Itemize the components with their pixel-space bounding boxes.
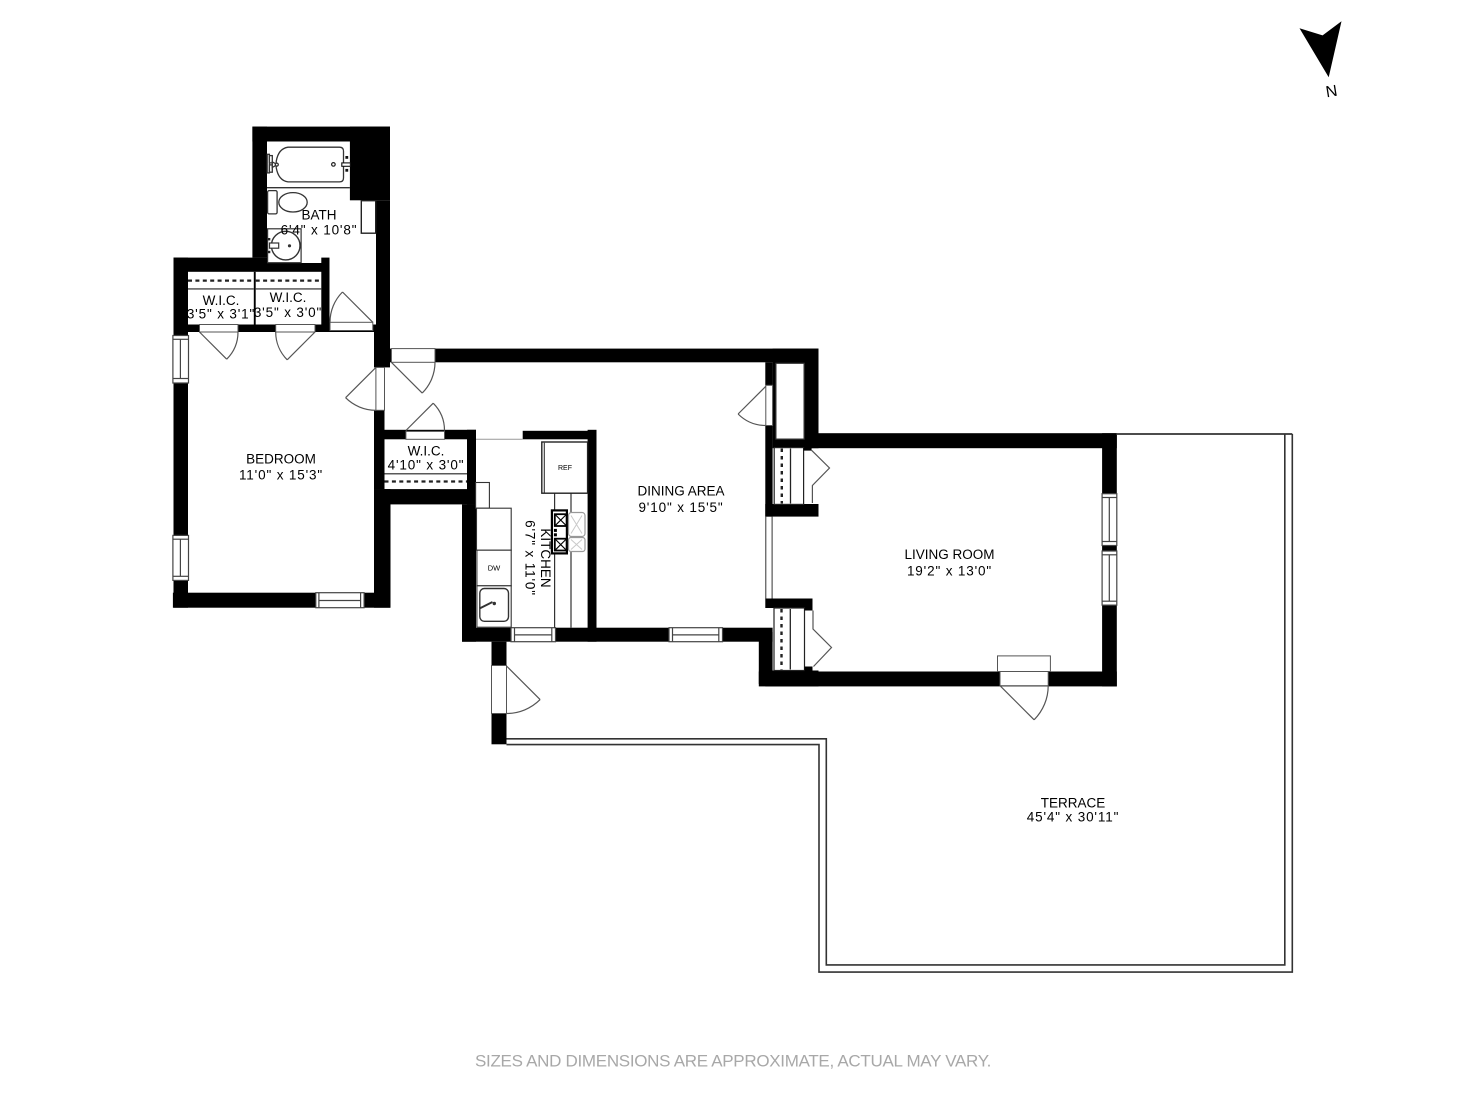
svg-text:TERRACE: TERRACE <box>1041 795 1106 810</box>
svg-text:3'5" x 3'1": 3'5" x 3'1" <box>187 306 255 321</box>
svg-text:LIVING ROOM: LIVING ROOM <box>904 547 994 562</box>
svg-text:45'4" x 30'11": 45'4" x 30'11" <box>1027 809 1119 824</box>
svg-text:19'2" x 13'0": 19'2" x 13'0" <box>907 563 992 578</box>
svg-text:6'4" x 10'8": 6'4" x 10'8" <box>281 223 358 238</box>
svg-text:DINING AREA: DINING AREA <box>637 483 724 498</box>
svg-text:6'7" x 11'0": 6'7" x 11'0" <box>523 520 538 596</box>
svg-text:4'10" x 3'0": 4'10" x 3'0" <box>388 457 465 472</box>
svg-text:REF: REF <box>558 465 572 472</box>
svg-text:BEDROOM: BEDROOM <box>246 451 316 466</box>
svg-text:3'5" x 3'0": 3'5" x 3'0" <box>254 305 322 320</box>
svg-text:DW: DW <box>488 564 501 573</box>
svg-text:KITCHEN: KITCHEN <box>538 528 553 587</box>
svg-text:W.I.C.: W.I.C. <box>408 443 445 458</box>
svg-text:SIZES AND DIMENSIONS ARE APPRO: SIZES AND DIMENSIONS ARE APPROXIMATE, AC… <box>475 1052 991 1071</box>
svg-text:BATH: BATH <box>301 207 336 222</box>
svg-text:W.I.C.: W.I.C. <box>270 290 307 305</box>
svg-text:9'10" x 15'5": 9'10" x 15'5" <box>638 500 723 515</box>
svg-text:11'0" x 15'3": 11'0" x 15'3" <box>239 467 323 482</box>
